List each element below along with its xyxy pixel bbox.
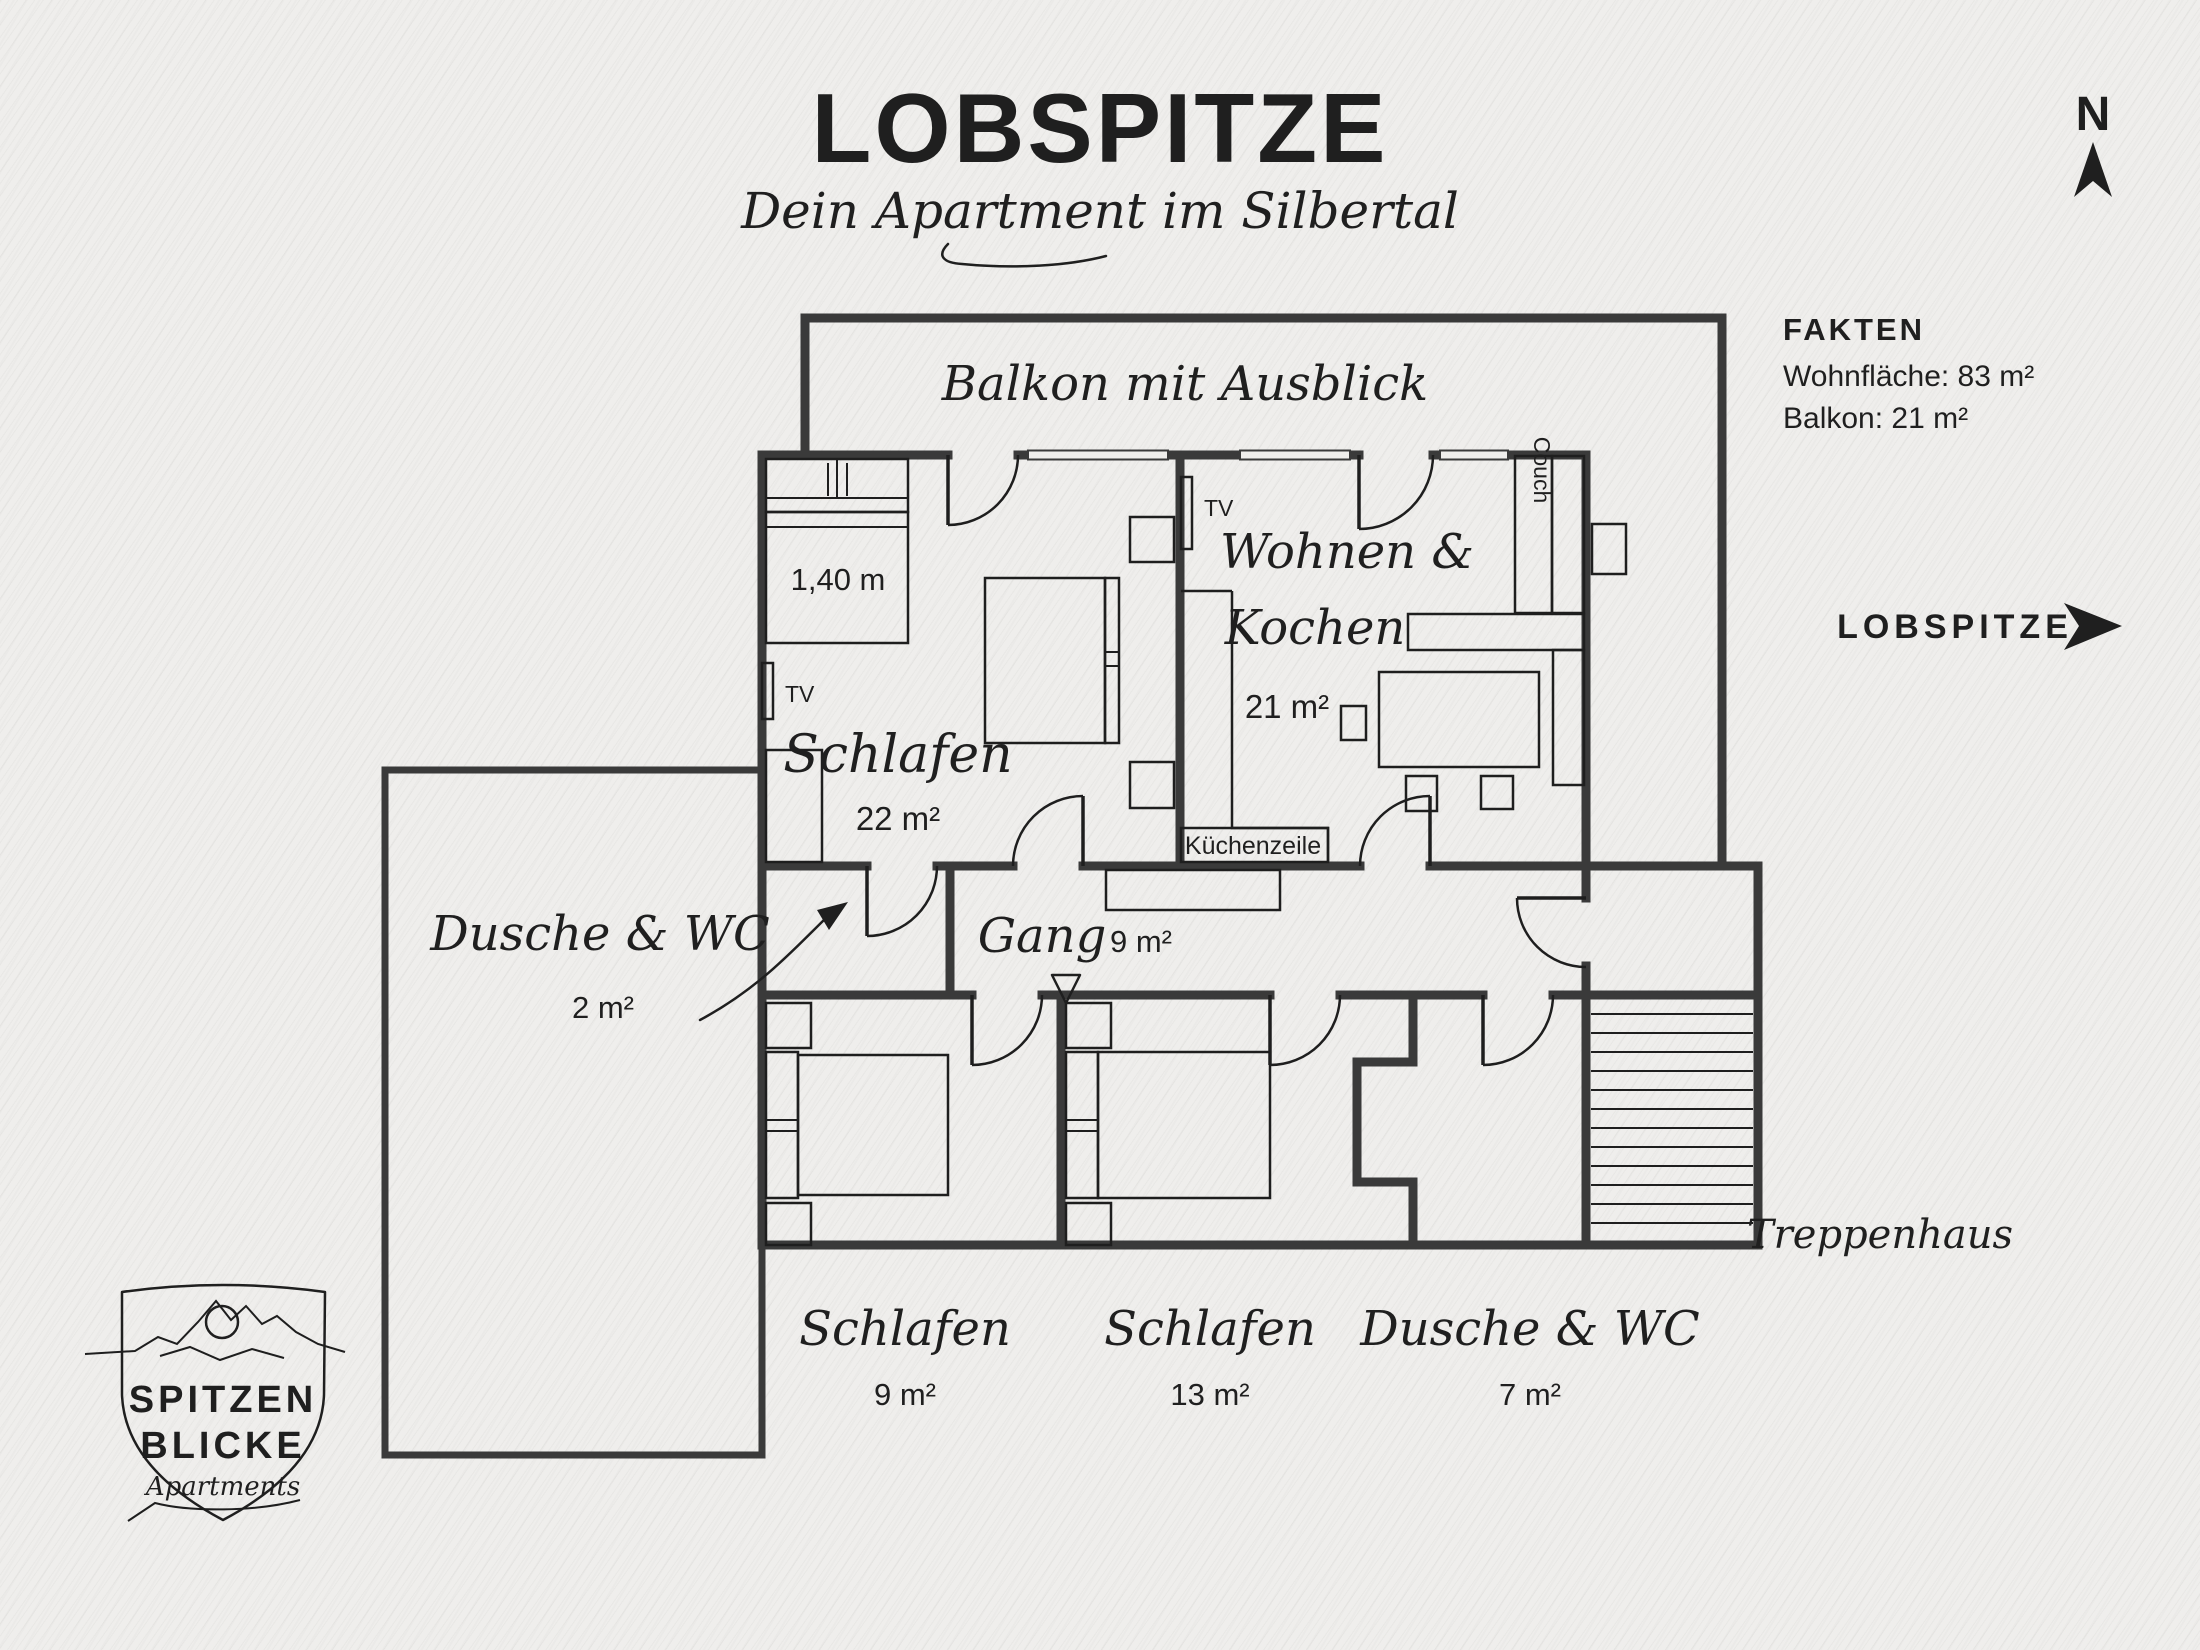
balcony-bench xyxy=(1592,524,1626,574)
room-label-bedroom-main: Schlafen xyxy=(783,725,1012,785)
facts-heading: FAKTEN xyxy=(1783,312,1925,347)
logo-mountains-icon xyxy=(85,1301,345,1360)
wardrobe xyxy=(766,459,908,512)
staircase xyxy=(1591,1014,1753,1223)
room-label-living-line2: Kochen xyxy=(1224,600,1406,656)
room-label-bedroom-mid: Schlafen xyxy=(1104,1301,1316,1357)
room-label-shower-small: Dusche & WC xyxy=(429,906,770,962)
page-title: LOBSPITZE xyxy=(812,73,1389,183)
area-label-hallway: 9 m² xyxy=(1110,924,1172,959)
area-label-bedroom-small: 9 m² xyxy=(874,1377,936,1412)
page-subtitle: Dein Apartment im Silbertal xyxy=(740,182,1459,240)
bed-mid-bedroom xyxy=(1066,1003,1270,1245)
room-label-living-line1: Wohnen & xyxy=(1220,524,1474,580)
couch xyxy=(1408,456,1584,785)
bed-double xyxy=(985,517,1174,808)
brand-tagline-underline xyxy=(128,1500,300,1521)
header: LOBSPITZE Dein Apartment im Silbertal xyxy=(740,73,1459,266)
room-label-stairs: Treppenhaus xyxy=(1747,1212,2013,1258)
couch-label: Couch xyxy=(1529,437,1555,503)
brand-name-line1: SPITZEN xyxy=(129,1379,317,1421)
dining-table xyxy=(1341,672,1539,811)
area-label-bedroom-mid: 13 m² xyxy=(1170,1377,1249,1412)
area-label-living: 21 m² xyxy=(1245,688,1329,725)
compass: N xyxy=(2074,88,2112,197)
kitchen-label: Küchenzeile xyxy=(1185,832,1321,860)
brand-tagline: Apartments xyxy=(144,1472,300,1502)
facts-panel: FAKTEN Wohnfläche: 83 m² Balkon: 21 m² xyxy=(1783,312,2034,435)
brand-badge: SPITZEN BLICKE Apartments xyxy=(85,1285,345,1521)
direction-marker: LOBSPITZE xyxy=(1837,603,2122,650)
window xyxy=(1028,451,1168,460)
direction-label: LOBSPITZE xyxy=(1837,608,2073,646)
room-labels: Balkon mit Ausblick 1,40 m TV Schlafen 2… xyxy=(429,356,2013,1412)
room-label-bedroom-small: Schlafen xyxy=(799,1301,1011,1357)
area-label-shower-small: 2 m² xyxy=(572,990,634,1025)
tv-label-living: TV xyxy=(1204,495,1234,521)
window xyxy=(1440,451,1508,460)
facts-living-area: Wohnfläche: 83 m² xyxy=(1783,360,2034,393)
bed-width-label: 1,40 m xyxy=(791,562,886,597)
stair-steps xyxy=(1591,1014,1753,1223)
area-label-bath: 7 m² xyxy=(1499,1377,1561,1412)
floor-plan-page: LOBSPITZE Dein Apartment im Silbertal N … xyxy=(0,0,2200,1650)
facts-balcony-area: Balkon: 21 m² xyxy=(1783,402,1968,435)
room-label-balcony: Balkon mit Ausblick xyxy=(941,356,1428,412)
logo-sun-icon xyxy=(206,1306,238,1338)
floor-plan-canvas: LOBSPITZE Dein Apartment im Silbertal N … xyxy=(0,0,2200,1650)
area-label-bedroom-main: 22 m² xyxy=(856,800,940,837)
adjacent-unit-outline xyxy=(385,770,762,1455)
north-label: N xyxy=(2076,88,2111,141)
hallway-sideboard xyxy=(1106,870,1280,910)
room-label-bath: Dusche & WC xyxy=(1359,1301,1700,1357)
brand-name-line2: BLICKE xyxy=(140,1425,305,1467)
tv-label-bedroom: TV xyxy=(785,681,815,707)
window xyxy=(1240,451,1350,460)
room-label-hallway: Gang xyxy=(978,908,1107,964)
bed-small-bedroom xyxy=(766,1003,948,1245)
subtitle-underline xyxy=(942,244,1106,266)
north-arrow-icon xyxy=(2074,142,2112,197)
